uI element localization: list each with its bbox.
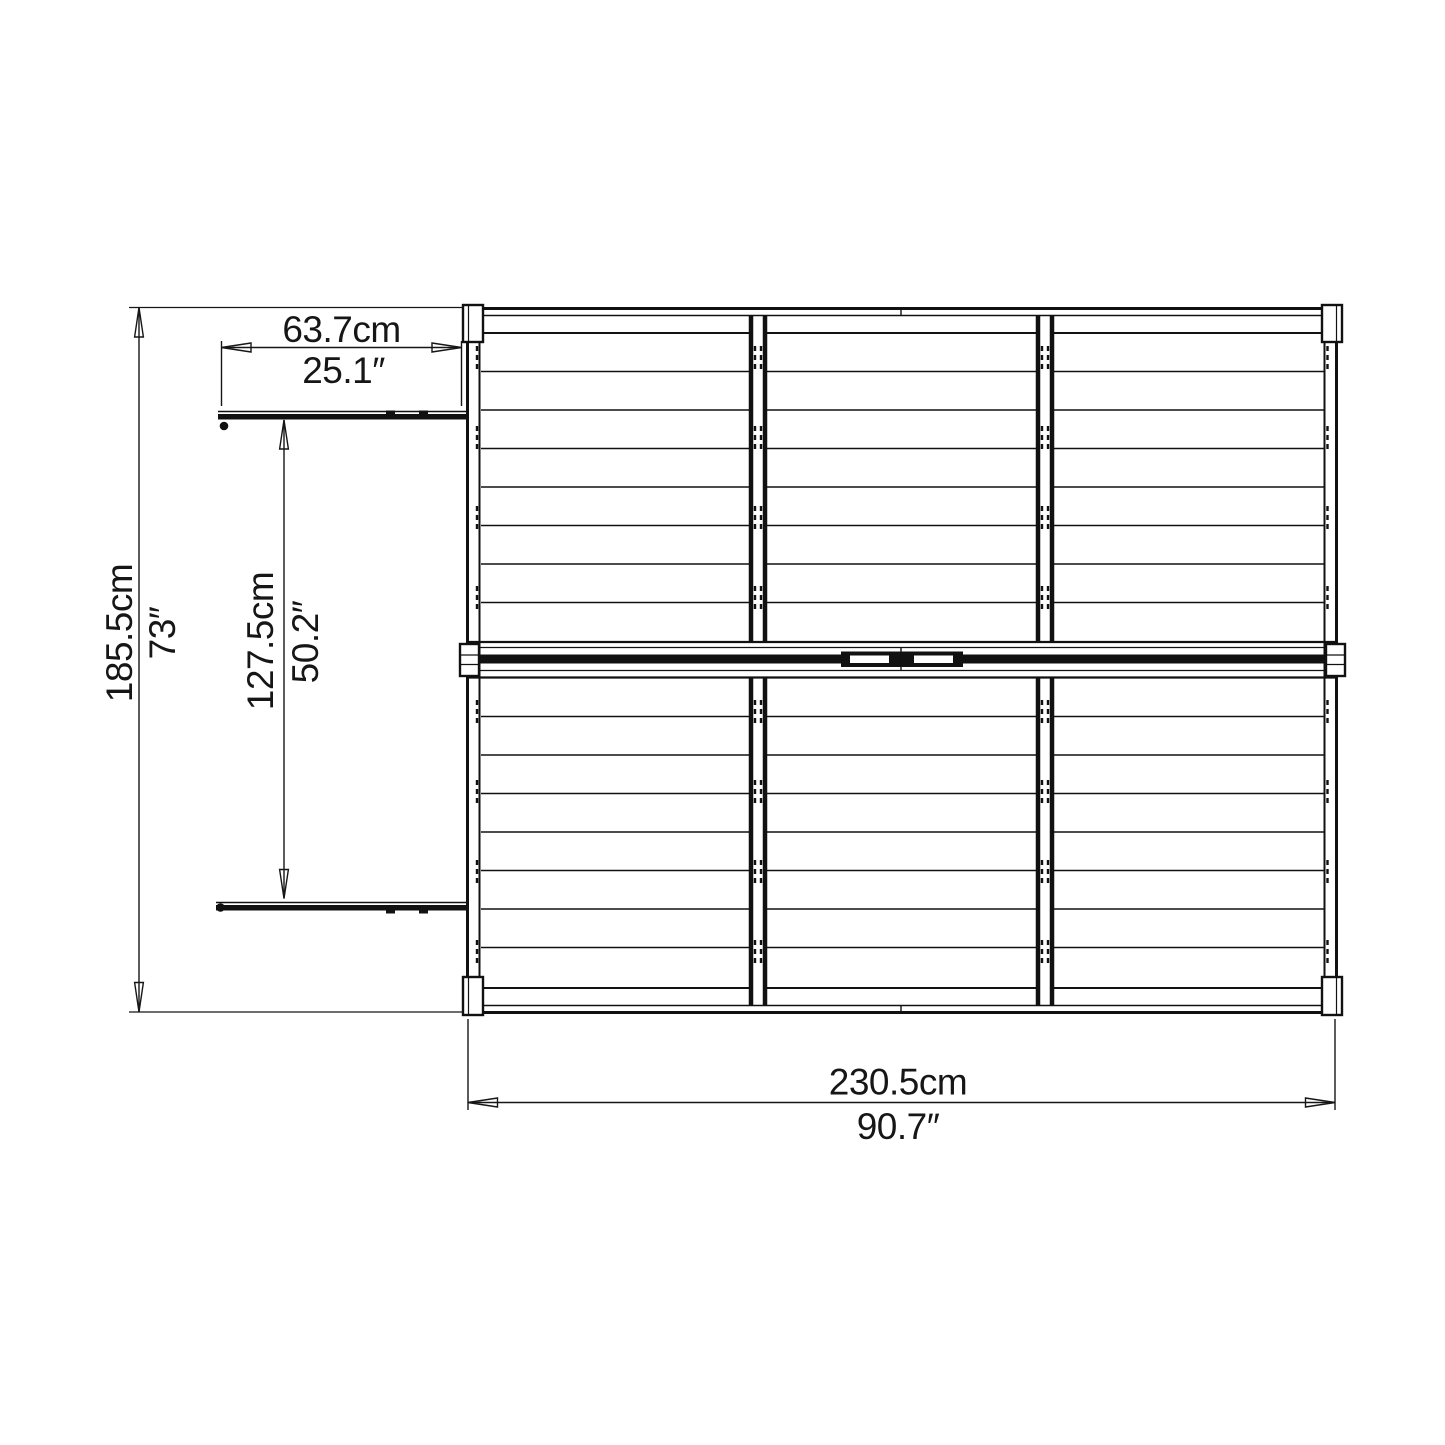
lower-open-door xyxy=(216,903,466,914)
overall-width-inches-label: 90.7″ xyxy=(857,1106,940,1147)
door-hinge-pin xyxy=(216,903,225,912)
ridge-handle xyxy=(841,652,963,668)
door-opening-inches-label: 50.2″ xyxy=(285,600,326,683)
dimension-annotations: 63.7cm 25.1″ 185.5cm 73″ 127.5cm 50.2″ xyxy=(99,308,1335,1148)
door-width-cm-label: 63.7cm xyxy=(282,309,400,350)
dimension-overall-width: 230.5cm 90.7″ xyxy=(468,1019,1335,1147)
dimension-door-opening: 127.5cm 50.2″ xyxy=(240,420,326,899)
shed-body xyxy=(460,305,1345,1015)
door-opening-cm-label: 127.5cm xyxy=(240,572,281,710)
corner-block-top-left xyxy=(463,305,483,342)
overall-width-cm-label: 230.5cm xyxy=(829,1062,967,1103)
ridge-cap xyxy=(466,642,1338,678)
roof-slats-bottom xyxy=(481,717,1324,948)
ridge-end-block-left xyxy=(460,644,479,676)
shed-top-view-diagram: 63.7cm 25.1″ 185.5cm 73″ 127.5cm 50.2″ xyxy=(0,0,1445,1445)
dimension-door-width: 63.7cm 25.1″ xyxy=(222,309,462,406)
door-hinge-pin xyxy=(220,422,229,431)
corner-block-bottom-left xyxy=(463,977,483,1015)
door-width-inches-label: 25.1″ xyxy=(302,350,385,391)
overall-depth-inches-label: 73″ xyxy=(142,606,183,659)
corner-block-bottom-right xyxy=(1322,977,1342,1015)
upper-open-door xyxy=(218,411,466,431)
corner-block-top-right xyxy=(1322,305,1342,342)
ridge-end-block-right xyxy=(1326,644,1345,676)
roof-slats-top xyxy=(481,372,1324,603)
overall-depth-cm-label: 185.5cm xyxy=(99,564,140,702)
